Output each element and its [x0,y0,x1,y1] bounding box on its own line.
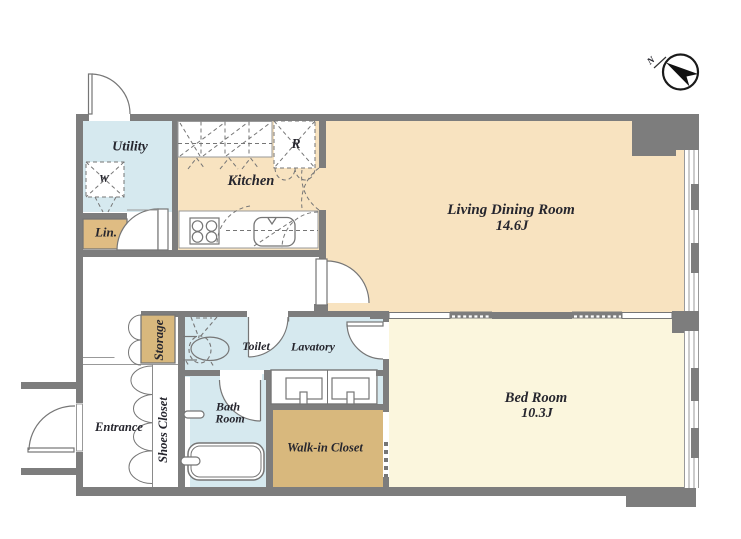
svg-text:W: W [99,173,110,185]
svg-text:Lavatory: Lavatory [290,340,336,354]
svg-text:Shoes Closet: Shoes Closet [156,397,170,463]
svg-text:Bed Room: Bed Room [504,390,567,406]
svg-text:Kitchen: Kitchen [227,173,275,189]
svg-text:Storage: Storage [151,319,166,360]
svg-text:10.3J: 10.3J [521,406,554,421]
svg-text:Living Dining Room: Living Dining Room [446,202,575,218]
svg-text:Lin.: Lin. [94,225,117,240]
svg-text:Room: Room [214,412,244,426]
svg-text:Walk-in Closet: Walk-in Closet [287,441,363,455]
svg-text:Entrance: Entrance [94,420,143,434]
svg-text:R: R [290,136,300,151]
svg-text:Utility: Utility [112,140,149,155]
svg-text:Toilet: Toilet [242,339,270,353]
svg-text:14.6J: 14.6J [496,218,529,234]
